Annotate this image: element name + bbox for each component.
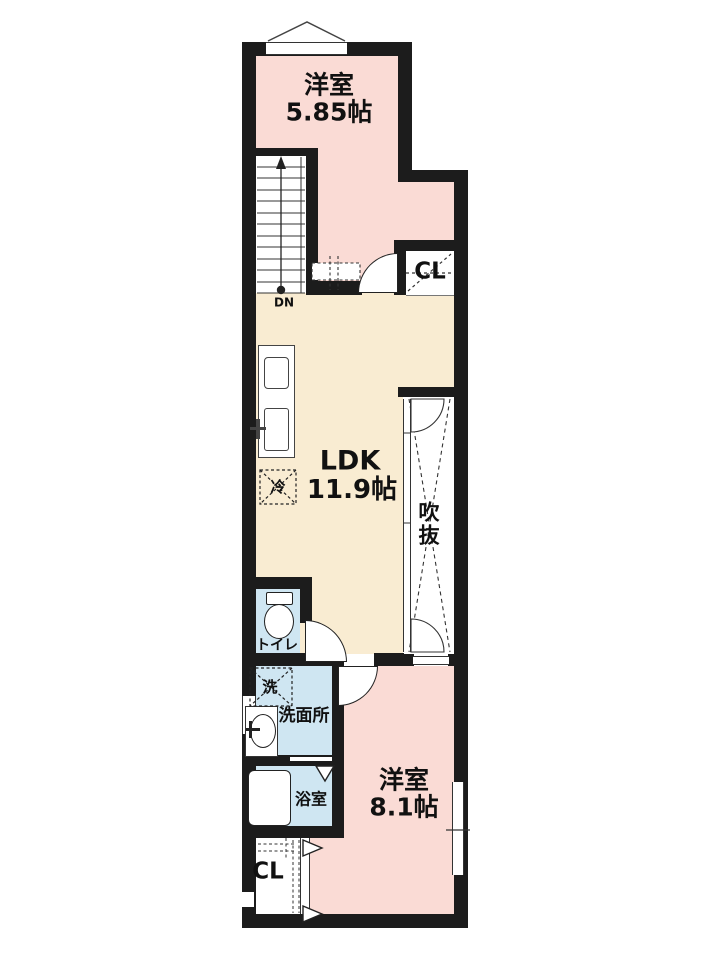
- window-bedroom-right: [452, 782, 464, 875]
- wall-stairs-right: [306, 148, 318, 295]
- bay-window-triangle: [268, 22, 345, 41]
- label-fridge: 冷: [270, 479, 285, 495]
- label-stairs-dn: DN: [274, 297, 294, 310]
- washbasin-bowl-icon: [250, 714, 276, 748]
- closet-bottom-door-strip: [300, 838, 310, 914]
- label-ldk-size: 11.9帖: [307, 476, 397, 504]
- bathtub-icon: [248, 770, 291, 826]
- label-toilet: トイレ: [256, 638, 298, 653]
- label-bedroom-bottom: 洋室: [379, 767, 429, 794]
- floor-plan: 洋室 5.85帖 DN CL LDK 11.9帖 冷 吹 抜 トイレ 洗 洗面所…: [0, 0, 704, 960]
- room-bedroom-bottom-wide: [308, 838, 454, 914]
- kitchen-sink-icon: [264, 408, 289, 451]
- wall-bath-bottom: [242, 826, 344, 838]
- label-washroom: 洗面所: [279, 707, 330, 725]
- window-void-bottom: [413, 656, 449, 665]
- label-bedroom-top: 洋室: [304, 72, 354, 99]
- wall-void-bottom-b: [448, 654, 468, 666]
- window-void-left: [403, 399, 411, 652]
- room-bedroom-top-extension: [398, 182, 454, 240]
- label-laundry: 洗: [262, 679, 277, 695]
- wall-notch: [240, 892, 254, 907]
- label-ldk: LDK: [320, 446, 381, 475]
- stairs-area: [256, 156, 306, 293]
- wall-top-right: [398, 42, 412, 182]
- washbasin-faucet-bar: [249, 721, 252, 738]
- bath-door-gap: [290, 757, 332, 761]
- label-closet-bottom: CL: [252, 860, 284, 885]
- label-bathroom: 浴室: [295, 790, 327, 807]
- wall-bottom: [242, 914, 468, 928]
- wall-hall-bottom: [306, 281, 362, 295]
- label-bedroom-top-size: 5.85帖: [286, 99, 373, 126]
- stove-icon: [264, 357, 289, 389]
- label-void: 吹 抜: [419, 501, 440, 546]
- label-closet-top: CL: [414, 260, 446, 285]
- label-bedroom-bottom-size: 8.1帖: [369, 794, 438, 821]
- wall-toilet-right: [300, 577, 312, 623]
- wall-closet-top-n: [398, 240, 456, 251]
- toilet-bowl-icon: [264, 604, 294, 639]
- wall-bedroom2-top: [374, 653, 404, 666]
- sink-faucet-bar: [256, 419, 260, 439]
- wall-void-top: [398, 387, 456, 397]
- window-top: [266, 42, 347, 55]
